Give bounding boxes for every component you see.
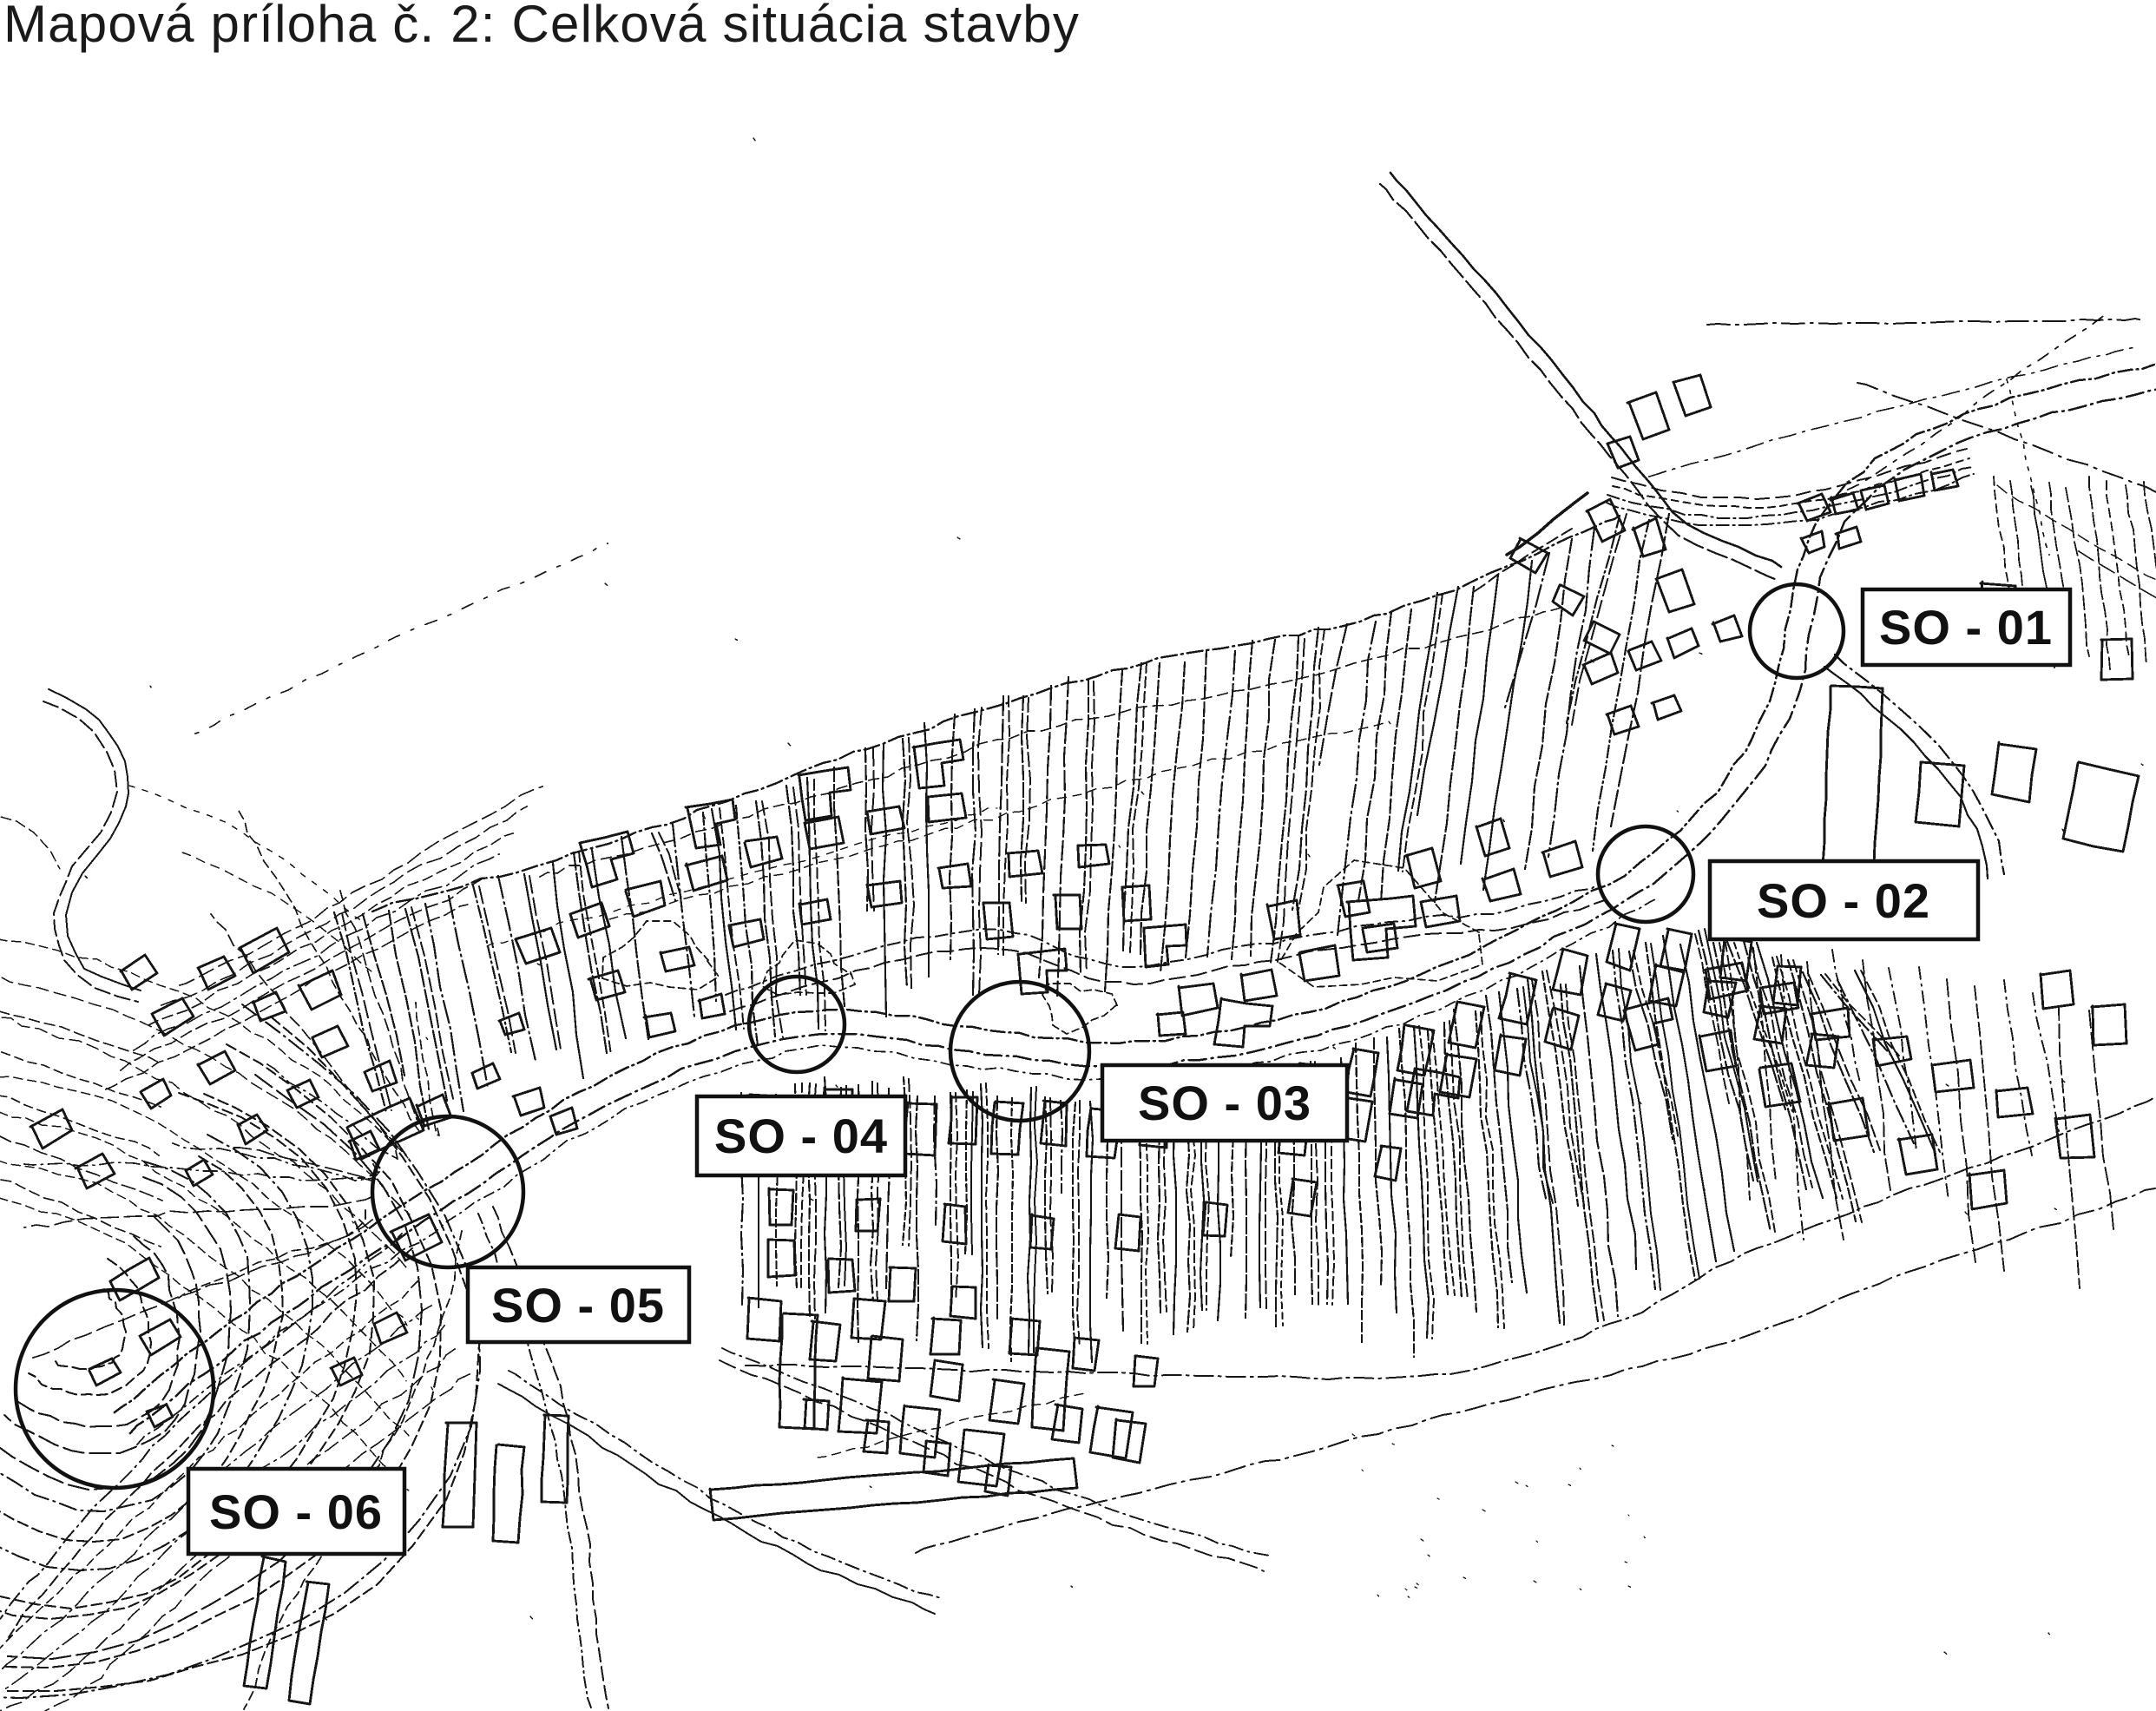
svg-text:SO - 02: SO - 02 [1757,873,1930,928]
svg-text:SO - 05: SO - 05 [491,1278,665,1333]
svg-text:SO - 04: SO - 04 [714,1109,888,1163]
svg-text:SO - 03: SO - 03 [1138,1076,1311,1130]
svg-text:SO - 06: SO - 06 [209,1484,383,1539]
svg-text:SO - 01: SO - 01 [1879,600,2053,655]
